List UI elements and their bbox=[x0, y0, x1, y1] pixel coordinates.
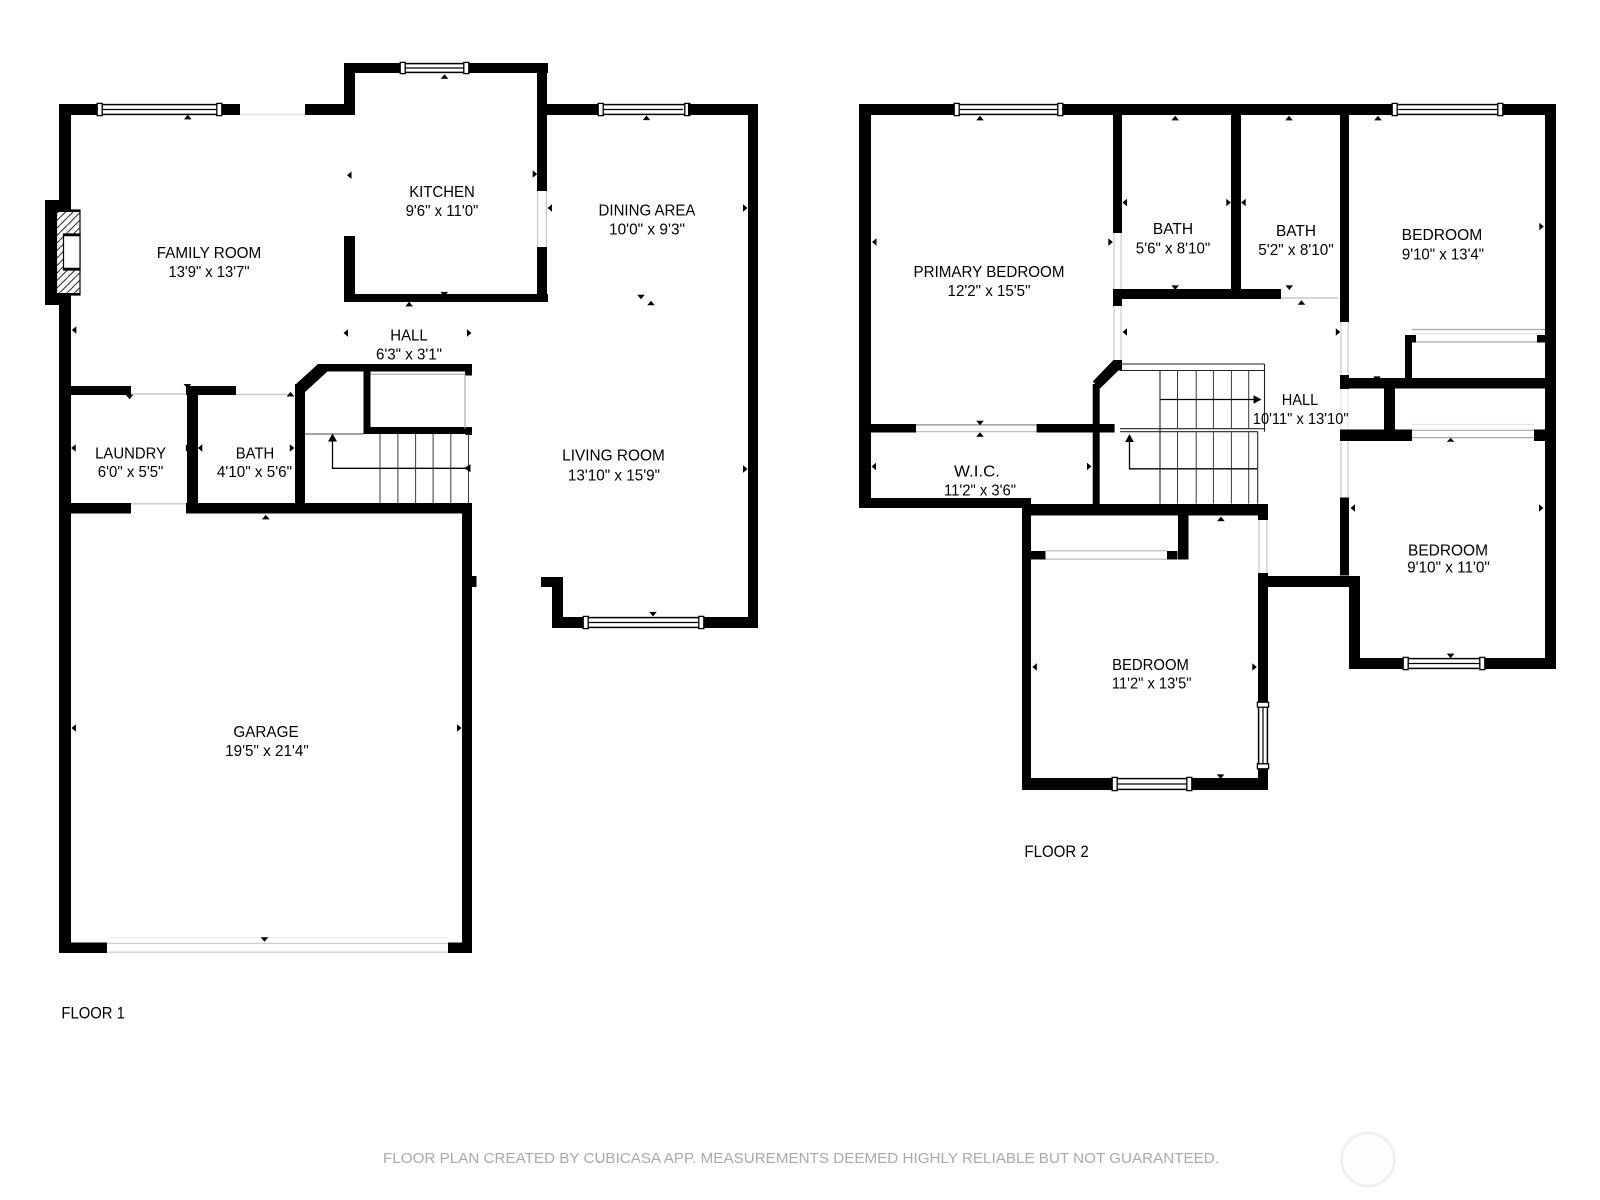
svg-text:BEDROOM: BEDROOM bbox=[1112, 657, 1189, 674]
svg-text:9'10" x 11'0": 9'10" x 11'0" bbox=[1407, 559, 1490, 576]
svg-text:BATH: BATH bbox=[236, 445, 275, 462]
svg-text:LAUNDRY: LAUNDRY bbox=[95, 445, 166, 462]
svg-text:FLOOR 1: FLOOR 1 bbox=[61, 1005, 125, 1023]
svg-text:HALL: HALL bbox=[390, 328, 428, 345]
svg-text:10'11" x 13'10": 10'11" x 13'10" bbox=[1253, 411, 1349, 428]
svg-text:HALL: HALL bbox=[1282, 392, 1319, 409]
svg-text:FAMILY ROOM: FAMILY ROOM bbox=[157, 245, 262, 262]
svg-text:BATH: BATH bbox=[1153, 221, 1193, 238]
svg-text:BATH: BATH bbox=[1276, 223, 1316, 240]
svg-text:10'0" x 9'3": 10'0" x 9'3" bbox=[609, 222, 685, 239]
svg-text:BEDROOM: BEDROOM bbox=[1408, 543, 1488, 560]
svg-text:KITCHEN: KITCHEN bbox=[409, 184, 475, 201]
svg-text:11'2" x 13'5": 11'2" x 13'5" bbox=[1112, 676, 1192, 693]
svg-text:13'10" x 15'9": 13'10" x 15'9" bbox=[568, 468, 660, 485]
svg-text:19'5" x 21'4": 19'5" x 21'4" bbox=[225, 743, 309, 760]
svg-text:LIVING ROOM: LIVING ROOM bbox=[562, 448, 665, 465]
svg-text:PRIMARY BEDROOM: PRIMARY BEDROOM bbox=[914, 264, 1065, 281]
svg-text:9'10" x 13'4": 9'10" x 13'4" bbox=[1402, 246, 1484, 263]
svg-text:GARAGE: GARAGE bbox=[233, 724, 298, 741]
svg-text:11'2" x 3'6": 11'2" x 3'6" bbox=[944, 483, 1016, 500]
svg-text:6'0" x 5'5": 6'0" x 5'5" bbox=[98, 464, 164, 481]
svg-text:W.I.C.: W.I.C. bbox=[954, 464, 1000, 481]
svg-text:9'6" x 11'0": 9'6" x 11'0" bbox=[406, 203, 479, 220]
svg-text:5'6" x 8'10": 5'6" x 8'10" bbox=[1136, 240, 1210, 257]
svg-text:BEDROOM: BEDROOM bbox=[1402, 227, 1483, 244]
svg-text:12'2" x 15'5": 12'2" x 15'5" bbox=[948, 283, 1031, 300]
svg-text:5'2" x 8'10": 5'2" x 8'10" bbox=[1258, 242, 1334, 259]
svg-text:FLOOR 2: FLOOR 2 bbox=[1024, 843, 1088, 861]
svg-text:4'10" x 5'6": 4'10" x 5'6" bbox=[217, 464, 292, 481]
svg-text:6'3" x 3'1": 6'3" x 3'1" bbox=[376, 347, 442, 364]
svg-text:13'9" x 13'7": 13'9" x 13'7" bbox=[169, 264, 250, 281]
svg-text:DINING AREA: DINING AREA bbox=[599, 203, 697, 220]
svg-text:FLOOR PLAN CREATED BY CUBICASA: FLOOR PLAN CREATED BY CUBICASA APP. MEAS… bbox=[383, 1151, 1219, 1167]
